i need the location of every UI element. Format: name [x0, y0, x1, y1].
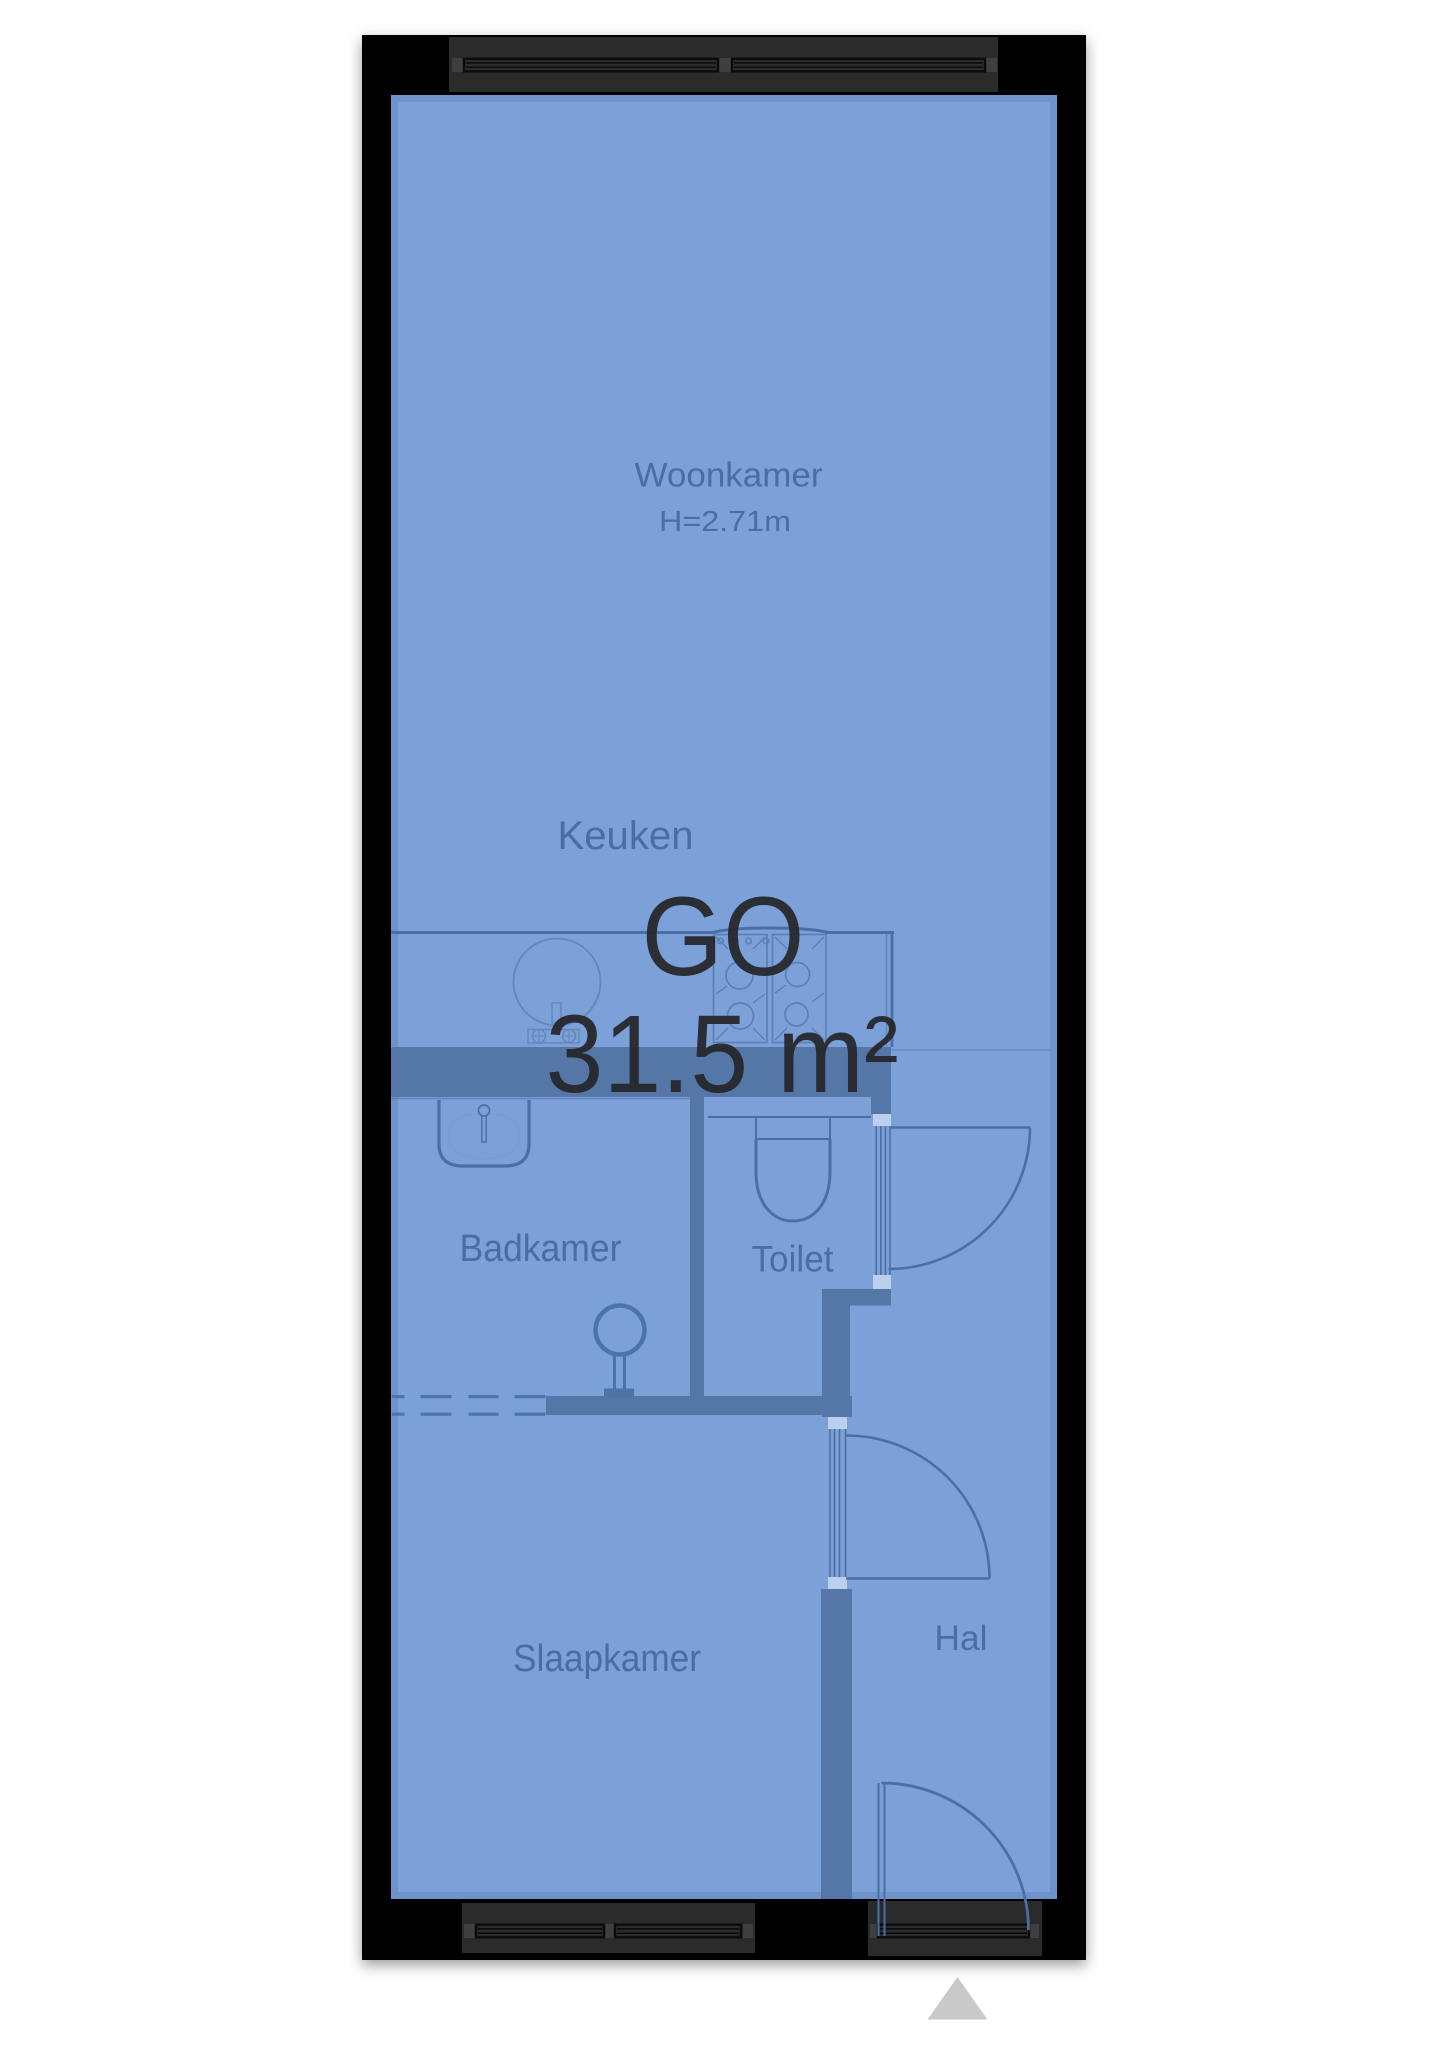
svg-text:Keuken: Keuken: [558, 814, 694, 858]
svg-text:Woonkamer: Woonkamer: [635, 457, 823, 495]
svg-text:Slaapkamer: Slaapkamer: [513, 1638, 701, 1680]
svg-text:GO: GO: [642, 874, 805, 999]
svg-text:H=2.71m: H=2.71m: [659, 506, 791, 538]
svg-text:Badkamer: Badkamer: [460, 1228, 622, 1270]
svg-text:Toilet: Toilet: [752, 1239, 835, 1280]
svg-text:Hal: Hal: [935, 1618, 988, 1658]
svg-text:31.5 m²: 31.5 m²: [546, 993, 899, 1116]
